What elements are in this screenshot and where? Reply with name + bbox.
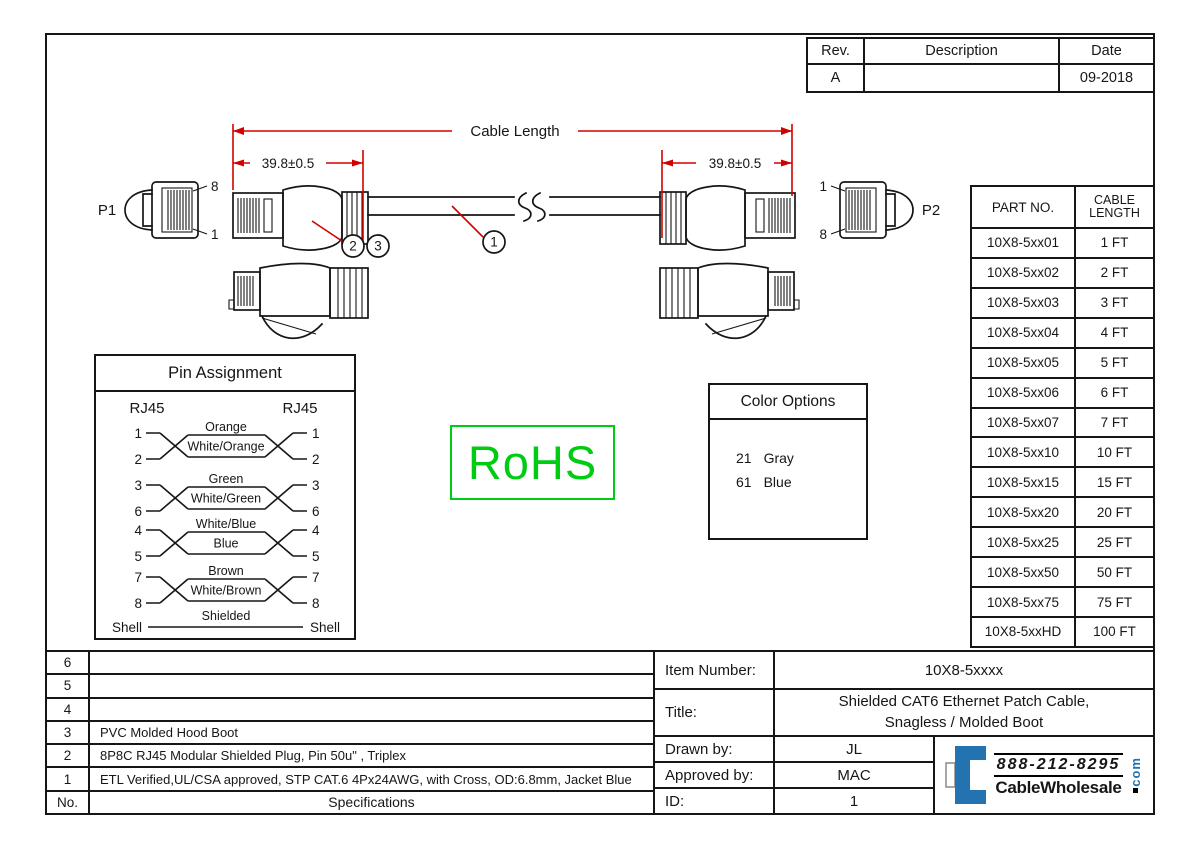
cable-length-cell: 1 FT xyxy=(1076,229,1153,257)
svg-text:6: 6 xyxy=(312,504,320,519)
cable-length-cell: 2 FT xyxy=(1076,259,1153,287)
part-no-cell: 10X8-5xx10 xyxy=(972,438,1076,466)
left-boot-dimension: 39.8±0.5 xyxy=(262,156,314,171)
svg-text:8: 8 xyxy=(134,596,142,611)
part-table-row: 10X8-5xx022 FT xyxy=(972,259,1153,289)
shell-left-label: Shell xyxy=(112,620,142,635)
svg-text:7: 7 xyxy=(134,570,142,585)
part-table-header: PART NO. CABLE LENGTH xyxy=(972,187,1153,229)
pin-pair: 4545White/BlueBlue xyxy=(134,517,320,564)
svg-text:White/Blue: White/Blue xyxy=(196,517,256,531)
callout-2: 2 xyxy=(349,239,357,254)
id-label: ID: xyxy=(655,787,775,813)
part-no-cell: 10X8-5xx01 xyxy=(972,229,1076,257)
spec-title-footer: Specifications xyxy=(90,792,653,813)
spec-text-cell xyxy=(90,699,653,720)
svg-text:White/Green: White/Green xyxy=(191,492,261,506)
svg-text:6: 6 xyxy=(134,504,142,519)
cable-length-cell: 20 FT xyxy=(1076,498,1153,526)
svg-text:5: 5 xyxy=(312,549,320,564)
part-table-row: 10X8-5xx7575 FT xyxy=(972,588,1153,618)
p2-pin1-label: 1 xyxy=(819,179,827,194)
svg-text:1: 1 xyxy=(312,426,320,441)
logo-name: CableWholesale xyxy=(994,778,1124,798)
shielded-label: Shielded xyxy=(202,609,251,623)
right-connector-side-view xyxy=(660,264,799,339)
cable-length-cell: 7 FT xyxy=(1076,409,1153,437)
drawn-by-value: JL xyxy=(775,735,935,761)
callout-1: 1 xyxy=(490,235,498,250)
pin-assignment-title: Pin Assignment xyxy=(168,364,282,382)
color-name: Blue xyxy=(764,474,792,490)
svg-text:3: 3 xyxy=(312,478,320,493)
color-code: 21 xyxy=(736,450,752,466)
svg-text:4: 4 xyxy=(134,523,142,538)
cable-length-cell: 4 FT xyxy=(1076,319,1153,347)
pin-pair: 7878BrownWhite/Brown xyxy=(134,564,319,611)
part-no-cell: 10X8-5xx50 xyxy=(972,558,1076,586)
cablewholesale-logo: 888-212-8295 CableWholesale com xyxy=(935,735,1153,813)
spec-text-cell: 8P8C RJ45 Modular Shielded Plug, Pin 50u… xyxy=(90,745,653,766)
cable-length-header: CABLE LENGTH xyxy=(1076,187,1153,227)
cable-length-cell: 25 FT xyxy=(1076,528,1153,556)
title-line2: Snagless / Molded Boot xyxy=(885,713,1043,733)
title-value: Shielded CAT6 Ethernet Patch Cable, Snag… xyxy=(775,688,1153,735)
spec-row: 4 xyxy=(47,699,653,722)
svg-text:7: 7 xyxy=(312,570,320,585)
p2-pin8-label: 8 xyxy=(819,227,827,242)
part-no-header: PART NO. xyxy=(972,187,1076,227)
spec-text-cell: PVC Molded Hood Boot xyxy=(90,722,653,743)
specifications-table: 6543PVC Molded Hood Boot28P8C RJ45 Modul… xyxy=(45,650,655,815)
color-option: 61Blue xyxy=(736,474,866,490)
pin-pairs: 1212OrangeWhite/Orange3636GreenWhite/Gre… xyxy=(134,420,320,611)
svg-text:White/Orange: White/Orange xyxy=(187,440,264,454)
part-table-row: 10X8-5xxHD100 FT xyxy=(972,618,1153,646)
spec-row: 5 xyxy=(47,675,653,698)
svg-text:8: 8 xyxy=(312,596,320,611)
part-no-cell: 10X8-5xx06 xyxy=(972,379,1076,407)
drawn-by-label: Drawn by: xyxy=(655,735,775,761)
svg-text:1: 1 xyxy=(134,426,142,441)
part-table-row: 10X8-5xx077 FT xyxy=(972,409,1153,439)
spec-row: 1ETL Verified,UL/CSA approved, STP CAT.6… xyxy=(47,768,653,791)
spec-row: 6 xyxy=(47,652,653,675)
p1-pin1-label: 1 xyxy=(211,227,219,242)
svg-text:Orange: Orange xyxy=(205,420,247,434)
p1-label: P1 xyxy=(98,202,116,219)
right-boot-dimension: 39.8±0.5 xyxy=(709,156,761,171)
svg-text:5: 5 xyxy=(134,549,142,564)
spec-no-cell: 6 xyxy=(47,652,90,673)
part-table-row: 10X8-5xx011 FT xyxy=(972,229,1153,259)
svg-text:3: 3 xyxy=(134,478,142,493)
spec-no-footer: No. xyxy=(47,792,90,813)
svg-text:Brown: Brown xyxy=(208,564,243,578)
p1-pin8-label: 8 xyxy=(211,179,219,194)
svg-text:Blue: Blue xyxy=(213,537,238,551)
rj45-right-header: RJ45 xyxy=(282,400,317,417)
right-connector-front-view xyxy=(660,186,795,250)
callout-3: 3 xyxy=(374,239,382,254)
part-no-cell: 10X8-5xxHD xyxy=(972,618,1076,646)
part-no-cell: 10X8-5xx15 xyxy=(972,468,1076,496)
svg-text:Green: Green xyxy=(209,472,244,486)
title-label: Title: xyxy=(655,688,775,735)
item-number-value: 10X8-5xxxx xyxy=(775,652,1153,688)
spec-row: 3PVC Molded Hood Boot xyxy=(47,722,653,745)
part-table-row: 10X8-5xx044 FT xyxy=(972,319,1153,349)
part-table-row: 10X8-5xx1515 FT xyxy=(972,468,1153,498)
spec-no-cell: 3 xyxy=(47,722,90,743)
part-table-body: 10X8-5xx011 FT10X8-5xx022 FT10X8-5xx033 … xyxy=(972,229,1153,646)
color-option: 21Gray xyxy=(736,450,866,466)
p2-connector-face-icon: P2 1 8 xyxy=(819,179,940,242)
shell-right-label: Shell xyxy=(310,620,340,635)
item-number-label: Item Number: xyxy=(655,652,775,688)
part-no-cell: 10X8-5xx20 xyxy=(972,498,1076,526)
cable-length-cell: 5 FT xyxy=(1076,349,1153,377)
cable-length-cell: 75 FT xyxy=(1076,588,1153,616)
title-block: Item Number: 10X8-5xxxx Title: Shielded … xyxy=(653,650,1155,815)
svg-text:2: 2 xyxy=(134,452,142,467)
cable-length-cell: 6 FT xyxy=(1076,379,1153,407)
dimension-lines xyxy=(233,124,792,242)
logo-dot-icon xyxy=(1133,788,1138,793)
pin-pair: 1212OrangeWhite/Orange xyxy=(134,420,319,467)
part-no-cell: 10X8-5xx75 xyxy=(972,588,1076,616)
approved-by-value: MAC xyxy=(775,761,935,787)
part-table-row: 10X8-5xx033 FT xyxy=(972,289,1153,319)
cable-length-cell: 10 FT xyxy=(1076,438,1153,466)
part-no-cell: 10X8-5xx03 xyxy=(972,289,1076,317)
spec-text-cell: ETL Verified,UL/CSA approved, STP CAT.6 … xyxy=(90,768,653,789)
cable-body xyxy=(368,193,660,221)
color-options-list: 21Gray61Blue xyxy=(710,420,866,490)
part-table-row: 10X8-5xx055 FT xyxy=(972,349,1153,379)
spec-no-cell: 1 xyxy=(47,768,90,789)
part-table-row: 10X8-5xx1010 FT xyxy=(972,438,1153,468)
pin-pair: 3636GreenWhite/Green xyxy=(134,472,319,519)
color-name: Gray xyxy=(764,450,794,466)
shell-row: Shell Shielded Shell xyxy=(112,609,340,635)
color-options-title: Color Options xyxy=(710,385,866,420)
part-no-cell: 10X8-5xx04 xyxy=(972,319,1076,347)
part-no-cell: 10X8-5xx07 xyxy=(972,409,1076,437)
spec-no-cell: 2 xyxy=(47,745,90,766)
svg-text:White/Brown: White/Brown xyxy=(191,584,262,598)
title-line1: Shielded CAT6 Ethernet Patch Cable, xyxy=(839,692,1090,712)
spec-text-cell xyxy=(90,652,653,673)
rohs-badge: RoHS xyxy=(450,425,615,500)
cable-length-cell: 3 FT xyxy=(1076,289,1153,317)
engineering-drawing-page: Rev. Description Date A 09-2018 xyxy=(0,0,1200,848)
approved-by-label: Approved by: xyxy=(655,761,775,787)
svg-text:2: 2 xyxy=(312,452,320,467)
spec-text-cell xyxy=(90,675,653,696)
cable-length-dimension-label: Cable Length xyxy=(470,123,559,140)
svg-text:4: 4 xyxy=(312,523,320,538)
part-table-row: 10X8-5xx5050 FT xyxy=(972,558,1153,588)
part-table-row: 10X8-5xx2525 FT xyxy=(972,528,1153,558)
spec-no-cell: 4 xyxy=(47,699,90,720)
spec-no-cell: 5 xyxy=(47,675,90,696)
color-options-box: Color Options 21Gray61Blue xyxy=(708,383,868,540)
color-code: 61 xyxy=(736,474,752,490)
part-no-cell: 10X8-5xx02 xyxy=(972,259,1076,287)
logo-phone: 888-212-8295 xyxy=(994,753,1124,777)
left-connector-side-view xyxy=(229,264,368,339)
part-table-row: 10X8-5xx066 FT xyxy=(972,379,1153,409)
part-number-table: PART NO. CABLE LENGTH 10X8-5xx011 FT10X8… xyxy=(970,185,1155,648)
id-value: 1 xyxy=(775,787,935,813)
logo-tld: com xyxy=(1128,757,1143,787)
cable-length-cell: 50 FT xyxy=(1076,558,1153,586)
rj45-left-header: RJ45 xyxy=(129,400,164,417)
spec-footer-row: No.Specifications xyxy=(47,792,653,813)
p2-label: P2 xyxy=(922,202,940,219)
spec-row: 28P8C RJ45 Modular Shielded Plug, Pin 50… xyxy=(47,745,653,768)
part-no-cell: 10X8-5xx25 xyxy=(972,528,1076,556)
part-table-row: 10X8-5xx2020 FT xyxy=(972,498,1153,528)
pin-assignment-box: Pin Assignment RJ45 RJ45 1212OrangeWhite… xyxy=(95,355,355,639)
part-no-cell: 10X8-5xx05 xyxy=(972,349,1076,377)
p1-connector-face-icon: P1 8 1 xyxy=(98,179,219,242)
cable-length-cell: 15 FT xyxy=(1076,468,1153,496)
logo-c-icon xyxy=(945,745,989,805)
cable-length-cell: 100 FT xyxy=(1076,618,1153,646)
